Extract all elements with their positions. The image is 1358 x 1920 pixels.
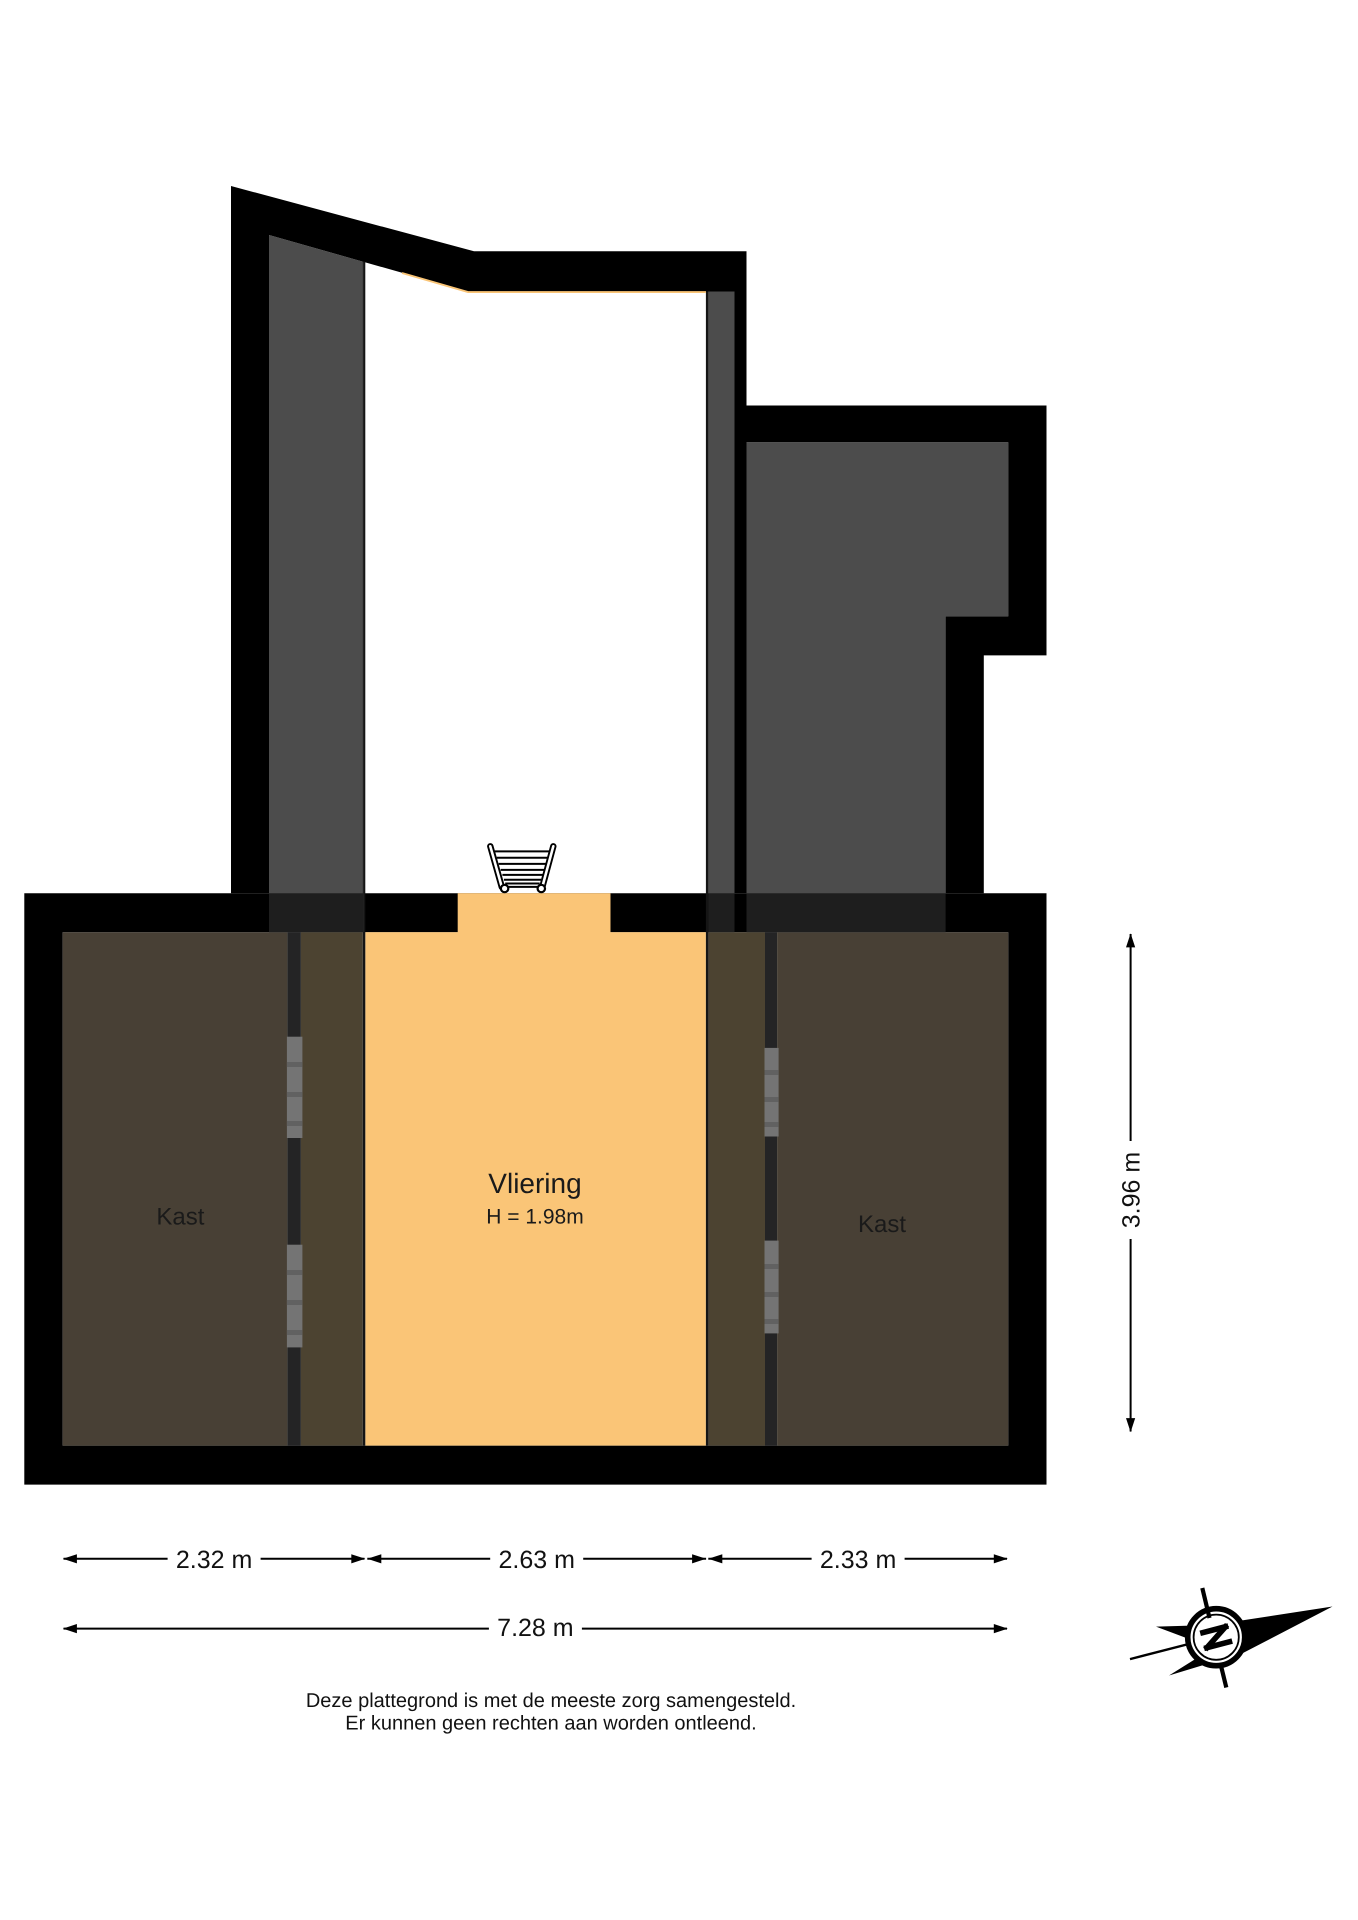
- svg-text:H = 1.98m: H = 1.98m: [486, 1205, 583, 1228]
- svg-text:3.96 m: 3.96 m: [1117, 1152, 1145, 1228]
- svg-text:2.33 m: 2.33 m: [820, 1546, 896, 1574]
- svg-text:Deze plattegrond is met de mee: Deze plattegrond is met de meeste zorg s…: [306, 1690, 796, 1712]
- svg-text:Kast: Kast: [156, 1204, 204, 1231]
- svg-text:Er kunnen geen rechten aan wor: Er kunnen geen rechten aan worden ontlee…: [345, 1713, 756, 1735]
- svg-text:Vliering: Vliering: [488, 1168, 581, 1199]
- svg-text:7.28 m: 7.28 m: [497, 1614, 573, 1642]
- svg-text:Kast: Kast: [858, 1211, 906, 1238]
- svg-text:2.63 m: 2.63 m: [498, 1546, 574, 1574]
- svg-text:2.32 m: 2.32 m: [176, 1546, 252, 1574]
